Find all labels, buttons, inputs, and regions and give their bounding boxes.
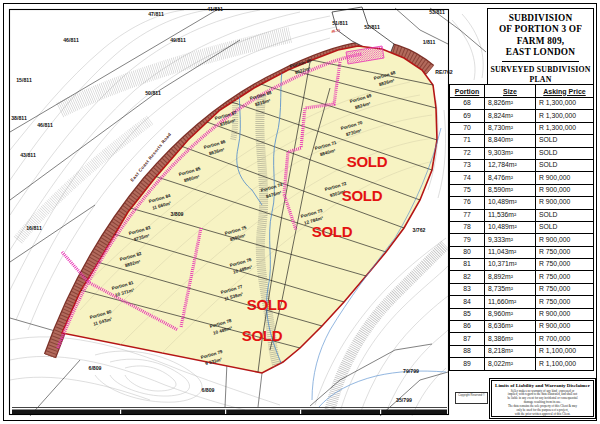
size-cell: 8,824m² xyxy=(485,110,536,122)
price-cell: R 750,000 xyxy=(536,283,594,295)
portion-cell: 80 xyxy=(450,246,485,258)
table-row: 729,303m²SOLD xyxy=(450,147,594,159)
price-column-header: Asking Price xyxy=(536,85,594,98)
price-cell: R 900,000 xyxy=(536,234,594,246)
portion-column-header: Portion xyxy=(450,85,485,98)
portion-cell: 88 xyxy=(450,345,485,357)
size-cell: 8,386m² xyxy=(485,333,536,345)
portion-cell: 71 xyxy=(450,135,485,147)
table-row: 8011,043m²R 750,000 xyxy=(450,246,594,258)
table-row: 8110,371m²R 750,000 xyxy=(450,259,594,271)
portion-cell: 77 xyxy=(450,209,485,221)
table-row: 799,333m²R 900,000 xyxy=(450,234,594,246)
table-row: 758,590m²R 900,000 xyxy=(450,184,594,196)
table-row: 878,386m²R 700,000 xyxy=(450,333,594,345)
plan-title: OF PORTION 3 OF xyxy=(488,24,593,35)
size-cell: 10,489m² xyxy=(485,221,536,233)
size-cell: 11,660m² xyxy=(485,296,536,308)
portion-cell: 73 xyxy=(450,159,485,171)
price-table-panel: Portion Size Asking Price 688,826m²R 1,3… xyxy=(449,84,592,374)
size-cell: 8,218m² xyxy=(485,345,536,357)
size-cell: 8,730m² xyxy=(485,122,536,134)
price-cell: R 750,000 xyxy=(536,296,594,308)
plan-title: FARM 809, xyxy=(488,36,593,47)
plan-sheet: Portion 688826m²Portion 698824m²Portion … xyxy=(0,0,600,424)
table-row: 828,892m²R 750,000 xyxy=(450,271,594,283)
table-row: 7810,489m²SOLD xyxy=(450,221,594,233)
table-row: 888,218m²R 1,100,000 xyxy=(450,345,594,357)
disclaimer-text: with the prior written approval of this … xyxy=(492,413,593,417)
price-cell: R 900,000 xyxy=(536,308,594,320)
table-row: 7610,489m²R 900,000 xyxy=(450,197,594,209)
price-cell: R 750,000 xyxy=(536,246,594,258)
title-block: SUBDIVISION OF PORTION 3 OF FARM 809, EA… xyxy=(487,8,594,85)
size-cell: 9,303m² xyxy=(485,147,536,159)
table-row: 688,826m²R 1,300,000 xyxy=(450,98,594,110)
disclaimer-box: Limits of Liability and Warranty Disclai… xyxy=(489,378,596,419)
size-cell: 8,826m² xyxy=(485,98,536,110)
portion-cell: 74 xyxy=(450,172,485,184)
portion-cell: 68 xyxy=(450,98,485,110)
price-cell: SOLD xyxy=(536,135,594,147)
portion-cell: 70 xyxy=(450,122,485,134)
size-cell: 8,735m² xyxy=(485,283,536,295)
size-cell: 11,536m² xyxy=(485,209,536,221)
size-cell: 8,840m² xyxy=(485,135,536,147)
table-row: 718,840m²SOLD xyxy=(450,135,594,147)
size-cell: 10,489m² xyxy=(485,197,536,209)
price-cell: R 750,000 xyxy=(536,259,594,271)
portion-cell: 87 xyxy=(450,333,485,345)
price-cell: R 700,000 xyxy=(536,333,594,345)
copyright-box: Copyright Reserved © xyxy=(455,392,488,404)
size-cell: 11,043m² xyxy=(485,246,536,258)
size-cell: 8,022m² xyxy=(485,358,536,370)
table-row: 748,476m²R 900,000 xyxy=(450,172,594,184)
table-row: 7312,784m²SOLD xyxy=(450,159,594,171)
price-cell: SOLD xyxy=(536,221,594,233)
price-cell: R 1,300,000 xyxy=(536,110,594,122)
price-cell: R 900,000 xyxy=(536,172,594,184)
size-cell: 8,590m² xyxy=(485,184,536,196)
size-cell: 9,333m² xyxy=(485,234,536,246)
size-cell: 10,371m² xyxy=(485,259,536,271)
size-cell: 8,636m² xyxy=(485,321,536,333)
table-row: 868,636m²R 900,000 xyxy=(450,321,594,333)
portion-cell: 86 xyxy=(450,321,485,333)
size-cell: 12,784m² xyxy=(485,159,536,171)
table-row: 8411,660m²R 750,000 xyxy=(450,296,594,308)
price-cell: R 750,000 xyxy=(536,271,594,283)
portion-cell: 89 xyxy=(450,358,485,370)
plan-subtitle: SURVEYED SUBDIVISION xyxy=(488,65,593,75)
size-cell: 8,476m² xyxy=(485,172,536,184)
size-cell: 8,960m² xyxy=(485,308,536,320)
table-header-row: Portion Size Asking Price xyxy=(450,85,594,98)
portion-cell: 76 xyxy=(450,197,485,209)
portion-cell: 81 xyxy=(450,259,485,271)
price-cell: R 1,300,000 xyxy=(536,122,594,134)
price-cell: SOLD xyxy=(536,147,594,159)
price-cell: R 1,300,000 xyxy=(536,98,594,110)
price-cell: SOLD xyxy=(536,159,594,171)
size-cell: 8,892m² xyxy=(485,271,536,283)
table-row: 698,824m²R 1,300,000 xyxy=(450,110,594,122)
plan-title: EAST LONDON xyxy=(488,47,593,58)
price-cell: R 1,100,000 xyxy=(536,358,594,370)
price-cell: SOLD xyxy=(536,209,594,221)
price-cell: R 1,100,000 xyxy=(536,345,594,357)
plan-title: SUBDIVISION xyxy=(488,13,593,24)
portion-cell: 72 xyxy=(450,147,485,159)
size-column-header: Size xyxy=(485,85,536,98)
title-divider xyxy=(502,61,580,62)
portion-cell: 78 xyxy=(450,221,485,233)
price-cell: R 900,000 xyxy=(536,321,594,333)
portion-cell: 85 xyxy=(450,308,485,320)
portion-cell: 83 xyxy=(450,283,485,295)
portion-cell: 82 xyxy=(450,271,485,283)
price-table: Portion Size Asking Price 688,826m²R 1,3… xyxy=(449,84,594,371)
table-row: 858,960m²R 900,000 xyxy=(450,308,594,320)
table-row: 708,730m²R 1,300,000 xyxy=(450,122,594,134)
price-cell: R 900,000 xyxy=(536,197,594,209)
table-row: 898,022m²R 1,100,000 xyxy=(450,358,594,370)
table-row: 7711,536m²SOLD xyxy=(450,209,594,221)
table-row: 838,735m²R 750,000 xyxy=(450,283,594,295)
price-cell: R 900,000 xyxy=(536,184,594,196)
portion-cell: 84 xyxy=(450,296,485,308)
portion-cell: 75 xyxy=(450,184,485,196)
portion-cell: 79 xyxy=(450,234,485,246)
portion-cell: 69 xyxy=(450,110,485,122)
